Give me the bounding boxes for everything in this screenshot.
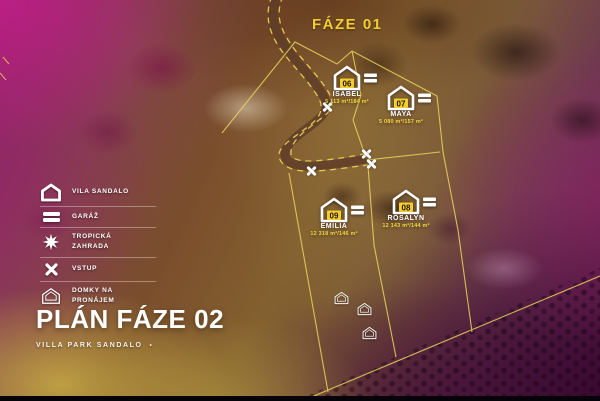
legend-item-vstup: VSTUP (40, 258, 156, 282)
plan-subtitle-text: VILLA PARK SANDALO (36, 342, 143, 349)
vstup-entrance-mark (305, 165, 317, 177)
villa-marker-isabel[interactable]: 06ISABEL5 113 m²/184 m² (333, 65, 361, 96)
villa-marker-emilia[interactable]: 09EMILIA12 318 m²/146 m² (320, 197, 348, 228)
villa-marker-rosalyn[interactable]: 08ROSALYN12 143 m²/144 m² (392, 189, 420, 220)
svg-text:07: 07 (397, 99, 406, 108)
villa-house-icon: 07 (387, 85, 415, 111)
domky-na-pronajem-icon (40, 287, 62, 305)
villa-area: 5 080 m²/157 m² (379, 119, 423, 125)
villa-park-site-plan: 06ISABEL5 113 m²/184 m²07MAYA5 080 m²/15… (0, 0, 600, 401)
villa-name: EMILIA (321, 223, 348, 230)
garage-icon (351, 205, 364, 215)
plan-title: PLÁN FÁZE 02 (36, 304, 224, 335)
map-legend: VILA SANDALOGARÁŽTROPICKÁ ZAHRADAVSTUPDO… (40, 179, 156, 311)
villa-name: MAYA (390, 111, 411, 118)
villa-name: ISABEL (333, 91, 362, 98)
legend-label: TROPICKÁ ZAHRADA (72, 232, 138, 253)
garaz-icon (40, 211, 62, 223)
edge-dashes (0, 57, 9, 80)
legend-label: GARÁŽ (72, 212, 99, 222)
legend-item-vila-sandalo: VILA SANDALO (40, 179, 156, 207)
vstup-icon (40, 262, 62, 277)
rental-house-icon (357, 302, 372, 321)
vstup-entrance-mark (365, 158, 377, 170)
legend-item-garaz: GARÁŽ (40, 207, 156, 228)
legend-label: VSTUP (72, 264, 97, 274)
rental-house-icon (334, 291, 349, 310)
plan-subtitle: VILLA PARK SANDALO• (36, 342, 224, 349)
villa-area: 12 143 m²/144 m² (382, 223, 429, 229)
subtitle-bullet: • (150, 343, 154, 349)
villa-house-icon: 06 (333, 65, 361, 91)
villa-area: 5 113 m²/184 m² (325, 99, 369, 105)
garage-icon (364, 73, 377, 83)
legend-label: VILA SANDALO (72, 187, 129, 197)
vila-sandalo-icon (40, 183, 62, 202)
title-block: PLÁN FÁZE 02 VILLA PARK SANDALO• (36, 304, 224, 349)
rental-house-icon (362, 326, 377, 345)
garage-icon (418, 93, 431, 103)
svg-text:09: 09 (330, 211, 339, 220)
garage-icon (423, 197, 436, 207)
legend-item-tropicka-zahrada: TROPICKÁ ZAHRADA (40, 228, 156, 258)
tropicka-zahrada-icon (40, 232, 62, 252)
villa-name: ROSALYN (387, 215, 424, 222)
villa-house-icon: 08 (392, 189, 420, 215)
svg-text:08: 08 (402, 203, 411, 212)
villa-marker-maya[interactable]: 07MAYA5 080 m²/157 m² (387, 85, 415, 116)
villa-area: 12 318 m²/146 m² (310, 231, 357, 237)
bottom-letterbox-bar (0, 396, 600, 401)
svg-text:06: 06 (343, 79, 352, 88)
villa-house-icon: 09 (320, 197, 348, 223)
phase-01-label: FÁZE 01 (312, 16, 383, 33)
